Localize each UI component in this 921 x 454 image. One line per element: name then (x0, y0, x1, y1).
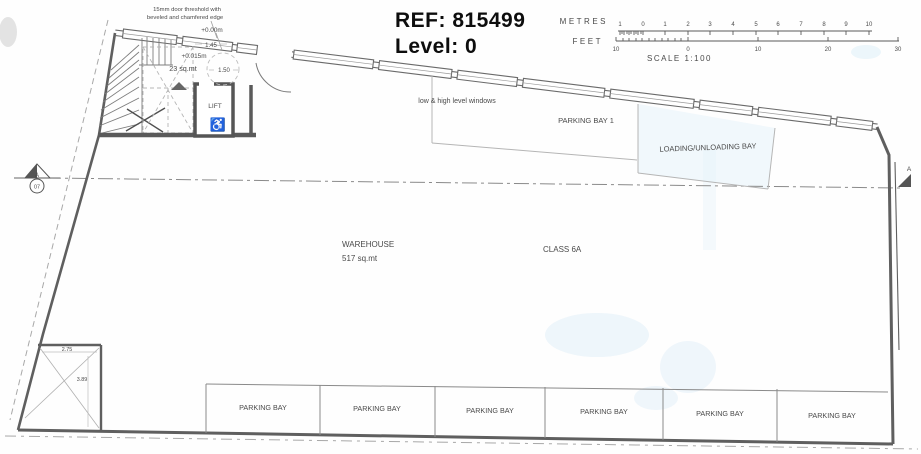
floorplan-page: 15mm door threshold with beveled and cha… (0, 0, 921, 454)
scale-bar (616, 31, 899, 41)
parking-bay-label: PARKING BAY (580, 407, 628, 416)
level-indicator: Level: 0 (395, 34, 525, 60)
door-threshold-mark (171, 82, 187, 90)
level-datum-label: +0.00m (201, 27, 223, 34)
door-width-dim: 1.45 (205, 43, 217, 49)
parking-bay-label: PARKING BAY (466, 406, 514, 415)
metres-tick: 8 (822, 22, 826, 28)
level-threshold-label: +0.015m (181, 53, 206, 60)
drawing-reference-block: REF: 815499 Level: 0 (395, 8, 525, 60)
feet-tick: 10 (613, 47, 620, 53)
warehouse-name: WAREHOUSE (342, 240, 394, 249)
metres-tick: 3 (708, 22, 712, 28)
section-cut-line (46, 178, 902, 188)
section-marker-right-arrow (898, 174, 911, 187)
metres-label: METRES (560, 17, 608, 26)
section-letter-right: A (907, 166, 912, 173)
parking-bay-labels: PARKING BAY PARKING BAY PARKING BAY PARK… (239, 403, 856, 420)
windows-note: low & high level windows (418, 98, 496, 105)
floorplan-drawing: 15mm door threshold with beveled and cha… (0, 0, 921, 454)
feet-tick: 10 (755, 47, 762, 53)
threshold-note-line2: beveled and chamfered edge (147, 15, 224, 21)
turning-circle-dim: 1.50 (218, 68, 230, 74)
metres-tick: 0 (641, 22, 645, 28)
feet-label: FEET (573, 37, 603, 46)
entrance-door-arc (256, 63, 291, 92)
lift-label: LIFT (208, 103, 222, 110)
section-number-left: 07 (34, 185, 40, 191)
threshold-note-line1: 15mm door threshold with (153, 7, 221, 13)
store-depth-dim: 3.89 (77, 377, 88, 383)
store-width-dim: 2.75 (62, 347, 73, 353)
ref-number: REF: 815499 (395, 8, 525, 34)
metres-tick: 4 (731, 22, 735, 28)
warehouse-area: 517 sq.mt (342, 254, 378, 263)
metres-tick: 1 (618, 22, 622, 28)
scale-label: SCALE 1:100 (647, 54, 712, 63)
metres-tick: 6 (776, 22, 780, 28)
parking-bay-label: PARKING BAY (808, 411, 856, 420)
feet-tick: 0 (686, 47, 690, 53)
parking-bay-label: PARKING BAY (239, 403, 287, 412)
feet-tick: 20 (825, 47, 832, 53)
metres-tick-labels: 1 0 1 2 3 4 5 6 7 8 9 10 (618, 22, 873, 28)
wheelchair-icon: ♿ (210, 117, 226, 132)
parking-bay-label: PARKING BAY (696, 409, 744, 418)
parking-bay-label: PARKING BAY (353, 404, 401, 413)
parking-bay-1-label: PARKING BAY 1 (558, 116, 614, 125)
feet-tick: 30 (895, 47, 902, 53)
metres-tick: 1 (663, 22, 667, 28)
class-label: CLASS 6A (543, 245, 582, 254)
metres-tick: 2 (686, 22, 690, 28)
metres-tick: 10 (866, 22, 873, 28)
metres-tick: 9 (844, 22, 848, 28)
metres-tick: 5 (754, 22, 758, 28)
exterior-walls (18, 33, 899, 444)
staircase (98, 37, 173, 134)
metres-tick: 7 (799, 22, 803, 28)
stair-area-label: 23 sq.mt (169, 64, 197, 73)
